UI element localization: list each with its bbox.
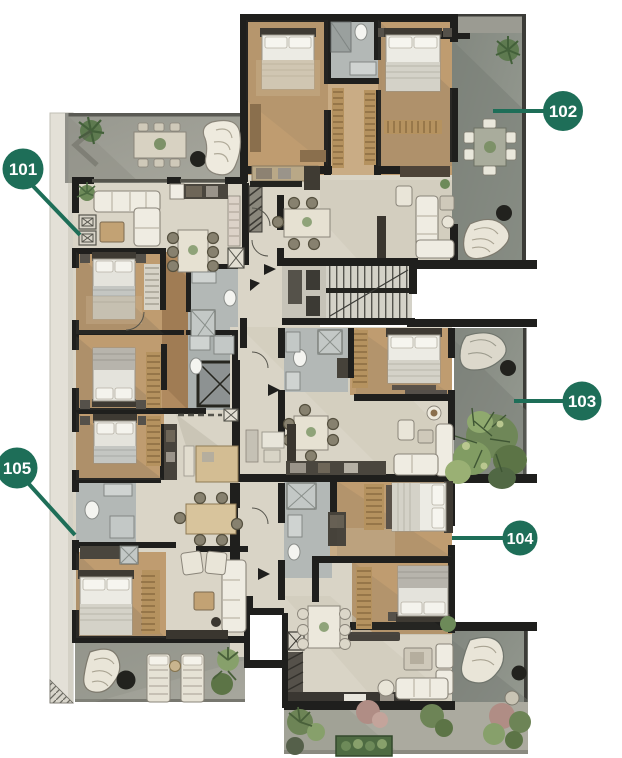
svg-text:105: 105	[3, 459, 31, 478]
svg-text:101: 101	[9, 160, 37, 179]
svg-text:103: 103	[568, 392, 596, 411]
svg-text:104: 104	[507, 531, 534, 548]
svg-text:102: 102	[549, 102, 577, 121]
